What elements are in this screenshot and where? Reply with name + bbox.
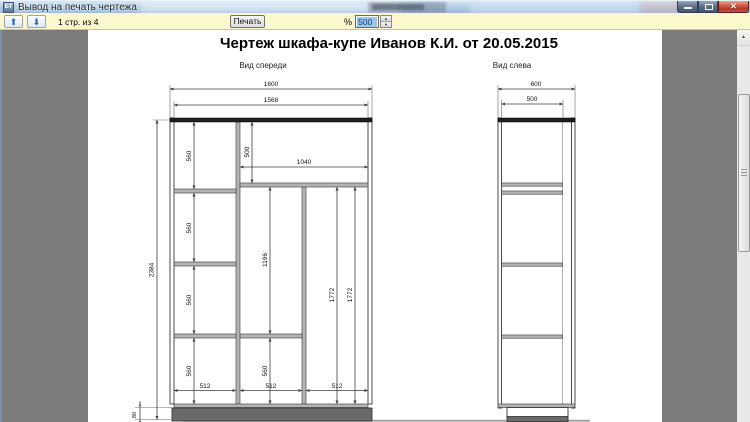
dim-column-width: 512 [332,383,343,390]
dim-inner-depth: 500 [527,96,538,103]
dim-depth: 600 [531,81,542,88]
toolbar: ⬆ ⬇ 1 стр. из 4 Печать % 500 ▲ ▼ [0,13,750,30]
app-icon: БТ [3,2,14,13]
dim-right-height: 1772 [347,287,354,302]
dim-section-height: 560 [186,294,193,305]
next-page-button[interactable]: ⬇ [27,15,46,28]
dim-overall-width: 1600 [264,81,279,88]
dim-overall-height: 2384 [149,262,156,277]
print-preview-window: БТ Вывод на печать чертежа ✕ ⬆ ⬇ 1 стр. … [0,0,750,422]
page-status: 1 стр. из 4 [58,17,98,27]
window-title: Вывод на печать чертежа [18,2,137,13]
minimize-icon [684,7,692,9]
dim-section-height: 560 [186,222,193,233]
drawing-canvas: 1600 1568 1040 500 560 560 560 560 560 1… [88,30,662,422]
print-button[interactable]: Печать [230,15,265,28]
scrollbar-grip [741,169,747,177]
dim-column-width: 512 [200,383,211,390]
side-view-drawing: 600 500 [498,81,575,422]
dim-plinth-height: 80 [132,412,138,418]
dim-top-height: 500 [244,146,251,157]
dim-top-width: 1040 [297,159,312,166]
arrow-up-icon: ⬆ [10,17,18,27]
front-view-drawing: 1600 1568 1040 500 560 560 560 560 560 1… [132,81,372,422]
dim-inner-width: 1568 [264,97,279,104]
dim-section-height: 560 [262,365,269,376]
dim-section-height: 560 [186,150,193,161]
page-preview: Чертеж шкафа-купе Иванов К.И. от 20.05.2… [88,30,662,422]
arrow-down-icon: ⬇ [33,17,41,27]
titlebar[interactable]: БТ Вывод на печать чертежа ✕ [0,0,750,13]
maximize-button[interactable] [698,1,718,13]
titlebar-glass-decoration [470,1,640,13]
zoom-spinner: ▲ ▼ [380,15,392,28]
dim-column-width: 512 [266,383,277,390]
spin-down-button[interactable]: ▼ [381,22,391,28]
window-left-border [0,30,2,422]
background-window-blur [372,4,424,10]
vertical-scrollbar[interactable]: ▲ [737,30,750,422]
minimize-button[interactable] [677,1,698,13]
dim-right-height: 1772 [329,287,336,302]
percent-label: % [344,17,352,27]
scroll-up-button[interactable]: ▲ [737,30,750,46]
close-button[interactable]: ✕ [718,1,749,13]
dim-middle-height: 1196 [262,253,269,267]
dim-section-height: 560 [186,365,193,376]
scroll-up-icon: ▲ [741,34,746,40]
maximize-icon [705,4,713,10]
zoom-input[interactable]: 500 [355,15,379,28]
preview-canvas: Чертеж шкафа-купе Иванов К.И. от 20.05.2… [0,30,750,422]
scrollbar-thumb[interactable] [738,94,750,252]
zoom-value: 500 [357,17,377,27]
previous-page-button[interactable]: ⬆ [4,15,23,28]
window-controls: ✕ [677,1,749,13]
titlebar-glass-decoration [140,1,400,13]
